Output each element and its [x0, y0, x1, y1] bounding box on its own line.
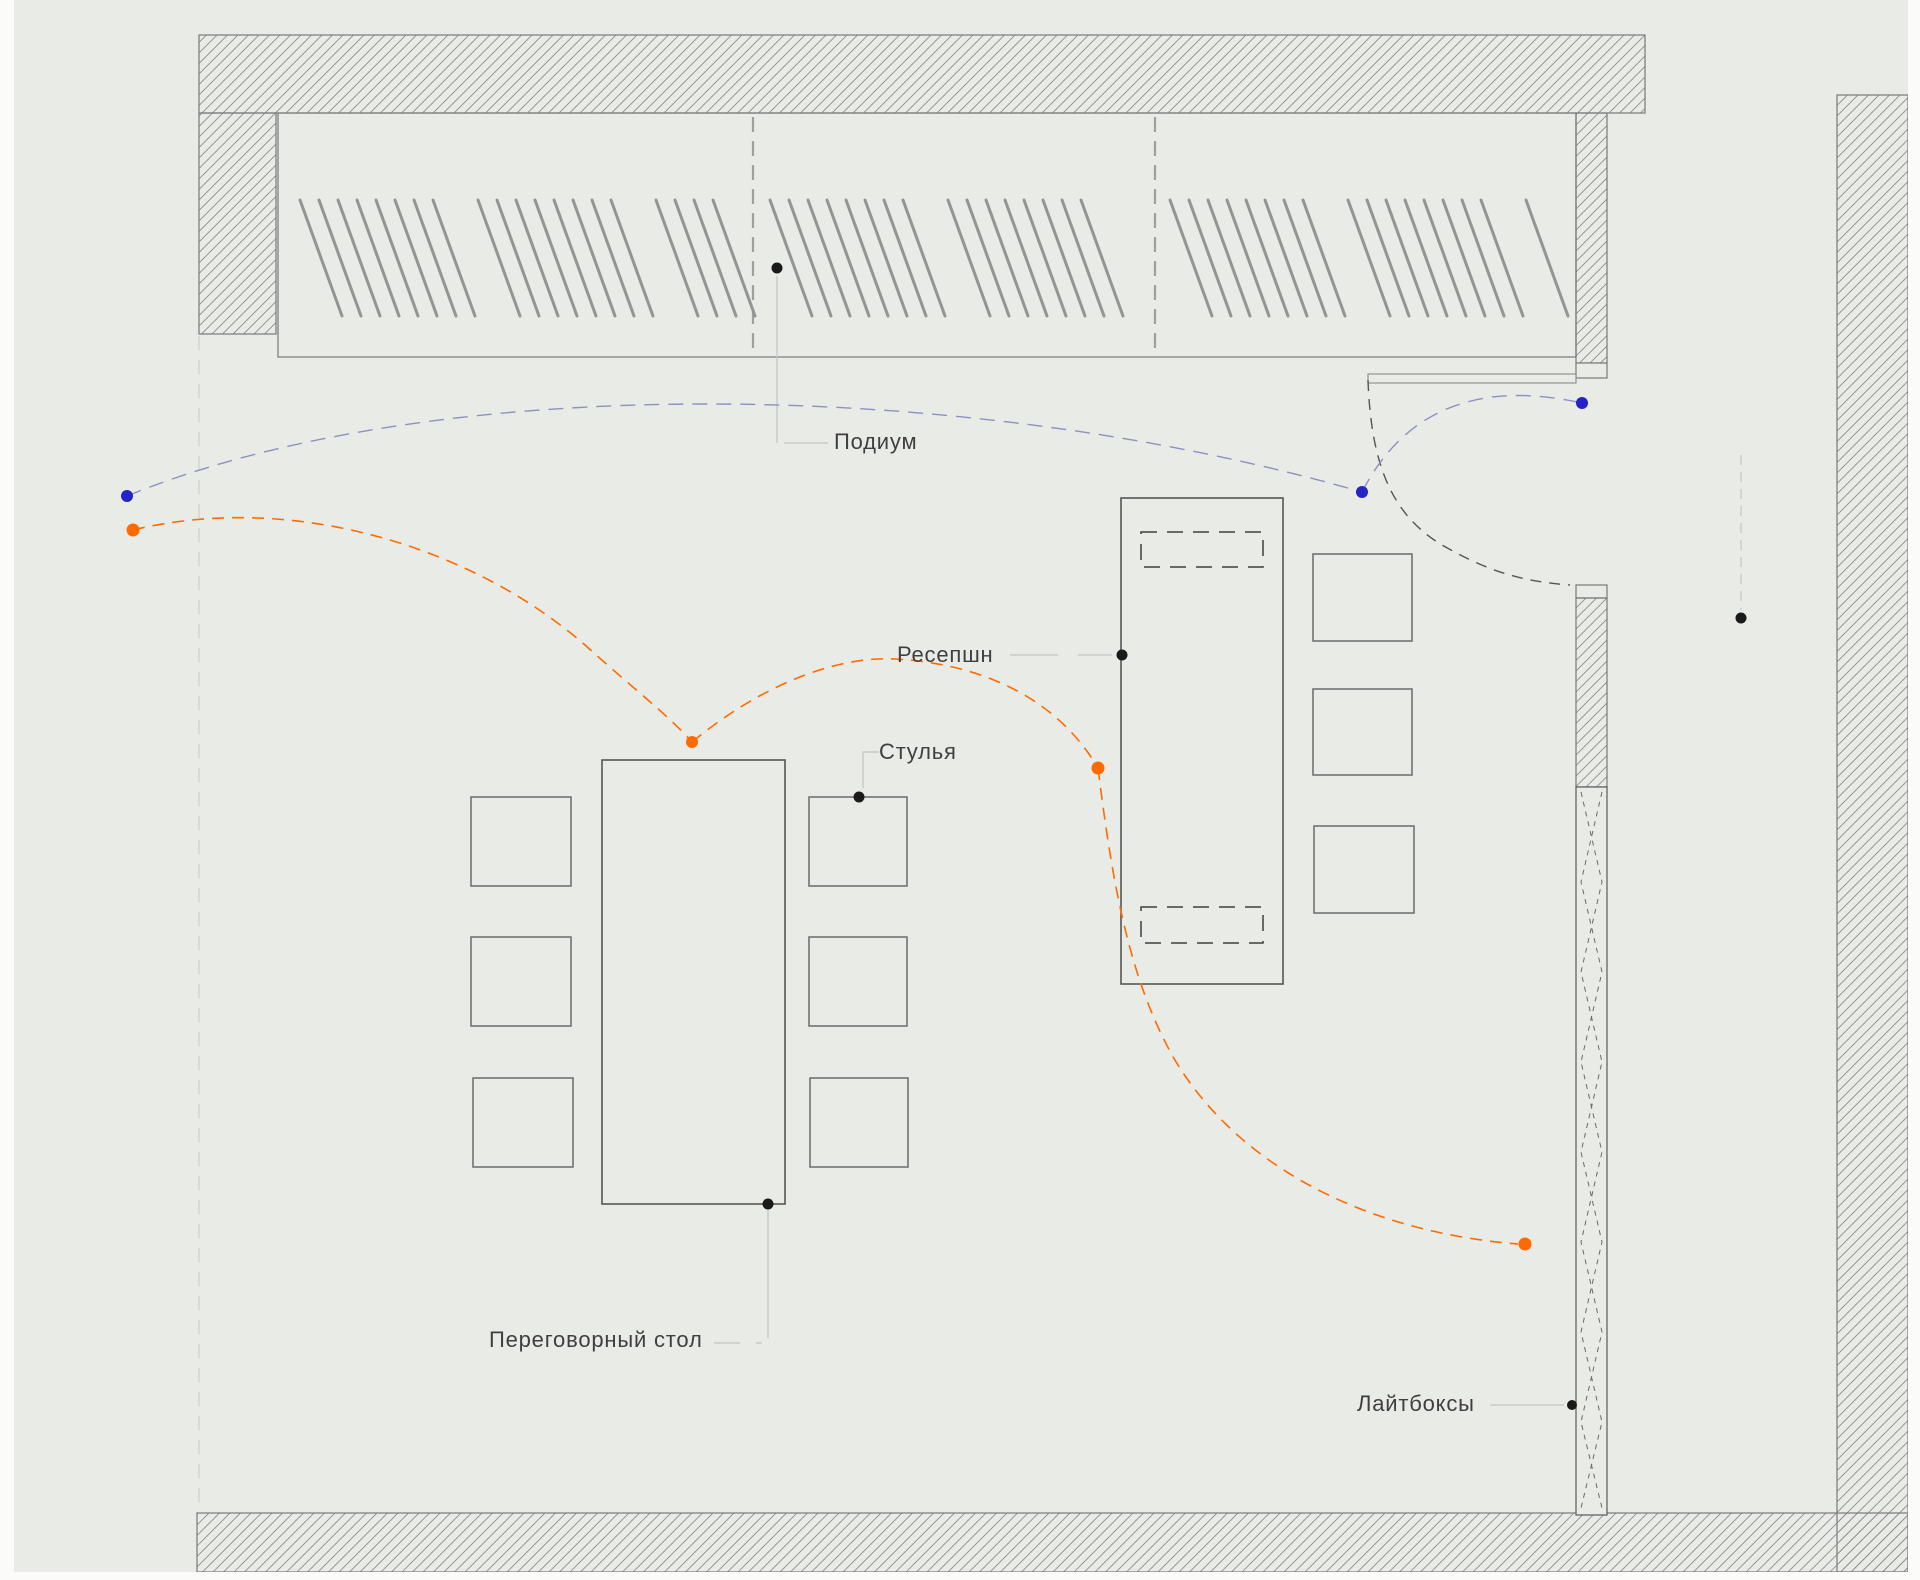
viewport-margin-right: [1908, 0, 1920, 1580]
label-meeting-table: Переговорный стол: [489, 1327, 703, 1353]
label-reception: Ресепшн: [897, 642, 994, 668]
label-chairs: Стулья: [879, 739, 957, 765]
viewport-margin-left: [0, 0, 14, 1580]
floorplan-canvas: { "labels": { "podium": "Подиум", "recep…: [0, 0, 1920, 1580]
label-layer: Подиум Ресепшн Стулья Переговорный стол …: [0, 0, 1920, 1580]
label-podium: Подиум: [834, 429, 917, 455]
label-lightboxes: Лайтбоксы: [1357, 1391, 1475, 1417]
viewport-margin-bottom: [0, 1572, 1920, 1580]
